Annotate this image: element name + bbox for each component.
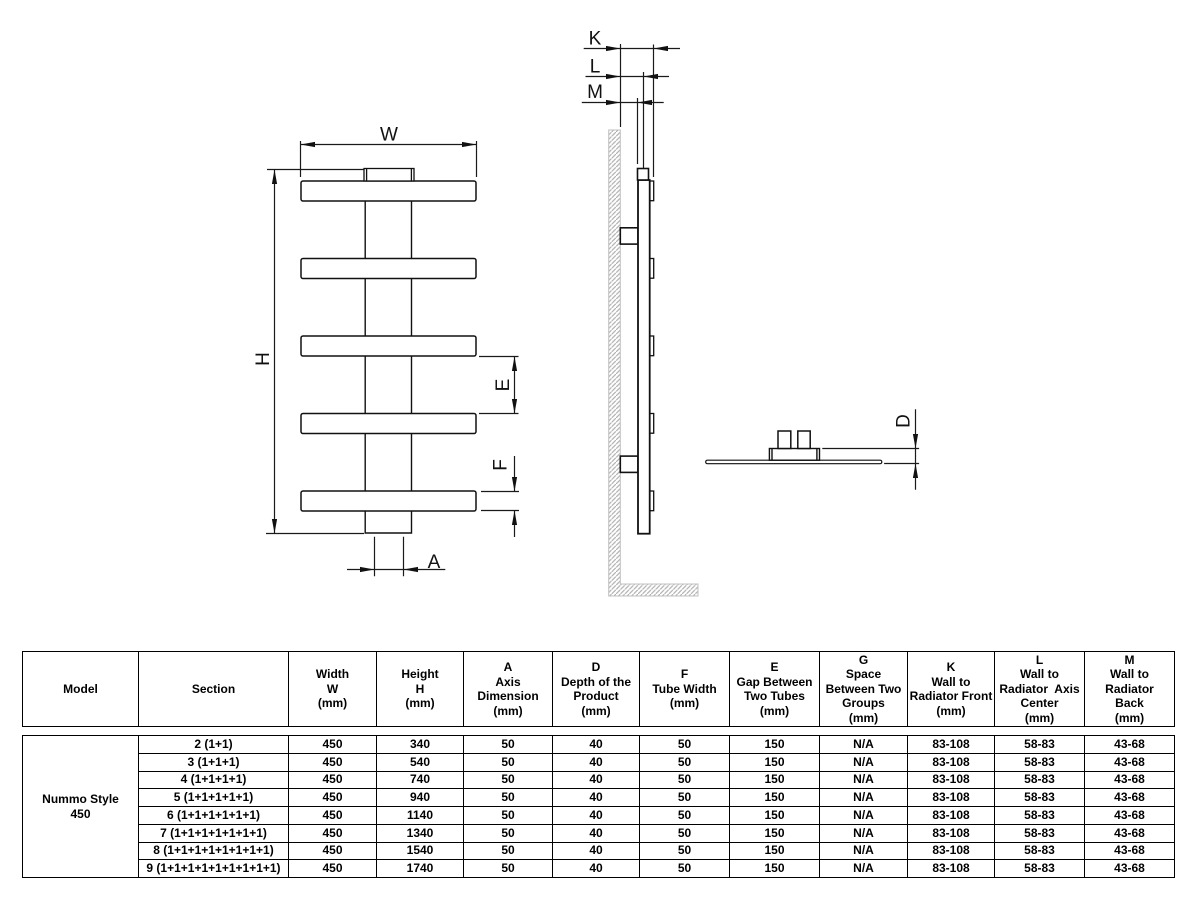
svg-text:H: H [253,352,274,366]
svg-text:M: M [587,82,603,103]
svg-text:W: W [380,125,398,146]
svg-text:F: F [491,459,512,471]
svg-text:A: A [428,552,441,573]
svg-text:E: E [493,379,514,392]
svg-text:K: K [589,29,602,50]
svg-text:L: L [590,57,601,78]
svg-text:D: D [894,414,915,428]
